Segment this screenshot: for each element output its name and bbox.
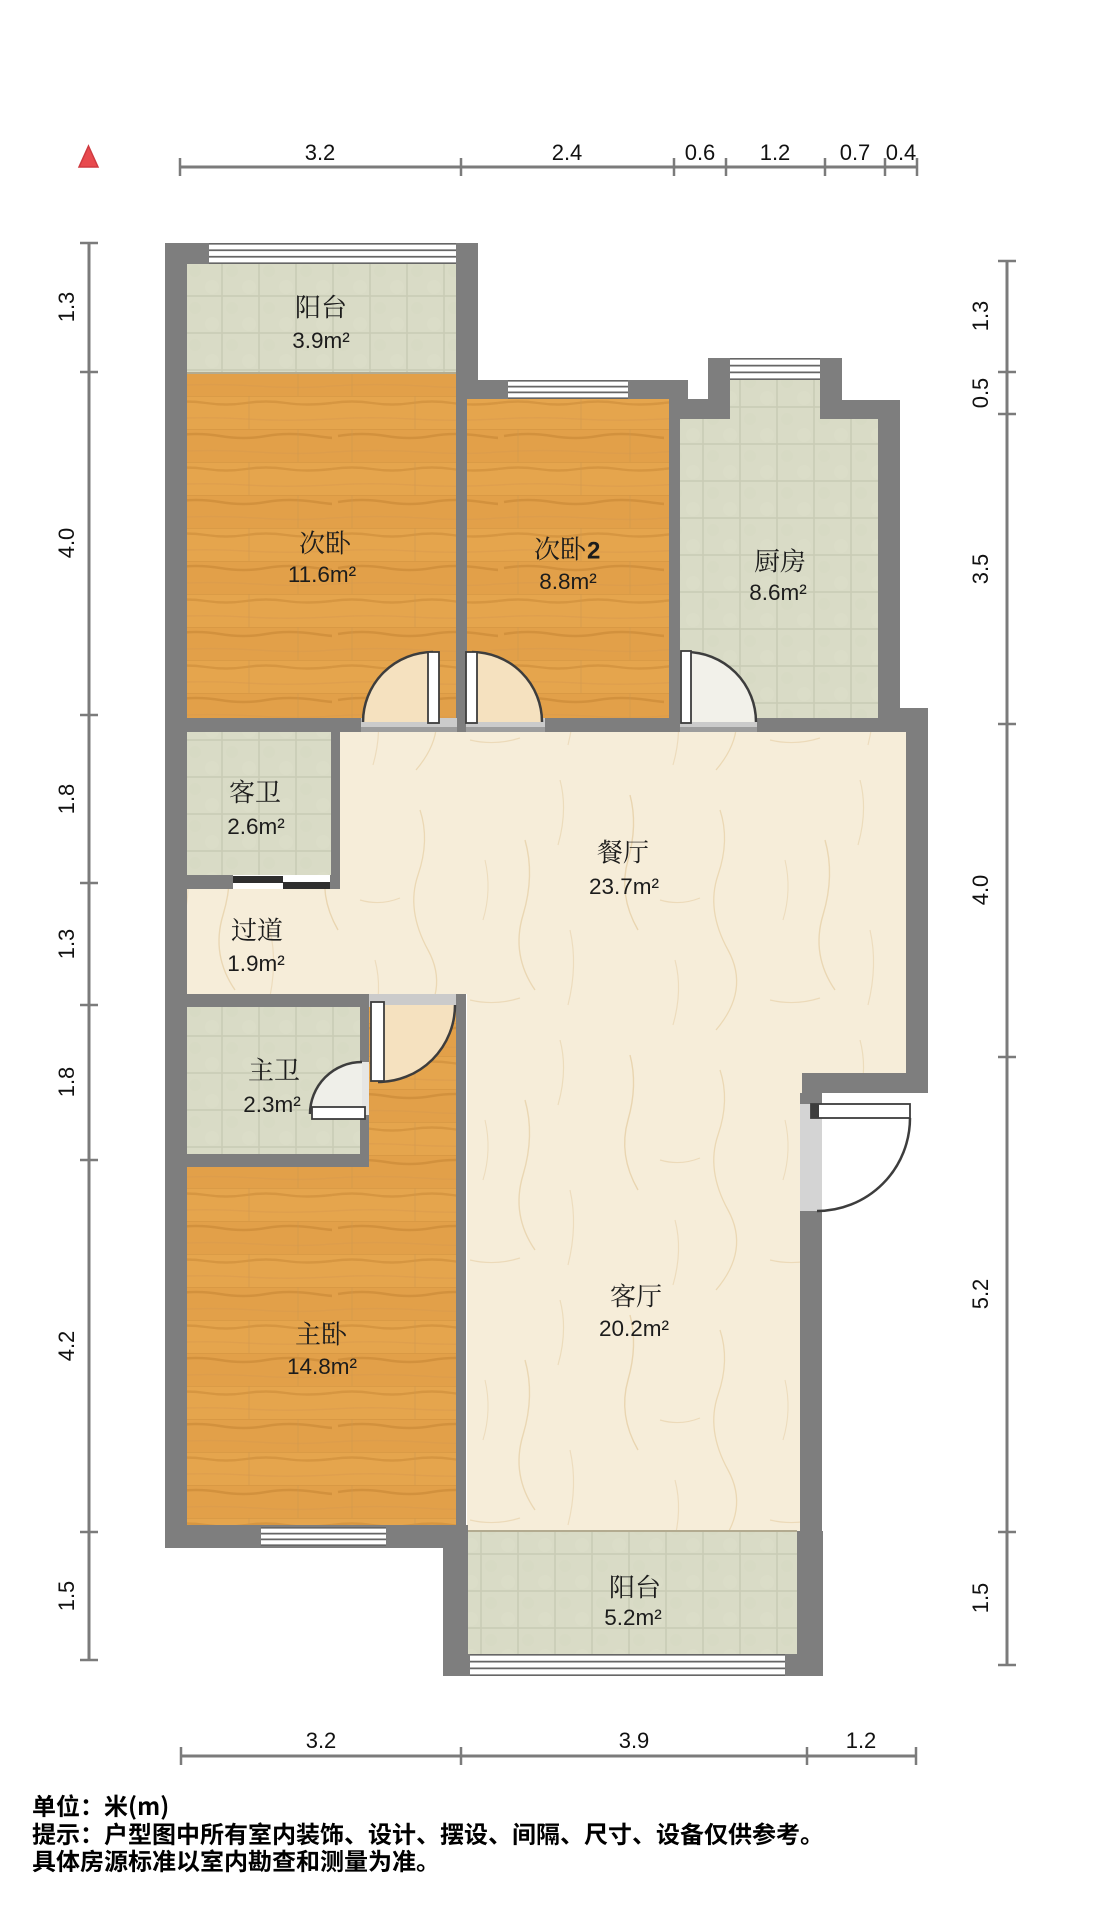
- svg-text:0.6: 0.6: [685, 140, 716, 165]
- svg-text:3.5: 3.5: [968, 554, 993, 585]
- svg-text:4.2: 4.2: [54, 1331, 79, 1362]
- svg-text:3.2: 3.2: [306, 1728, 337, 1753]
- svg-text:8.8m²: 8.8m²: [539, 569, 597, 594]
- svg-text:8.6m²: 8.6m²: [749, 580, 807, 605]
- svg-text:2.4: 2.4: [552, 140, 583, 165]
- svg-text:2: 2: [587, 537, 600, 564]
- svg-text:5.2: 5.2: [968, 1279, 993, 1310]
- svg-text:1.3: 1.3: [54, 929, 79, 960]
- svg-text:3.9: 3.9: [619, 1728, 650, 1753]
- svg-text:3.2: 3.2: [305, 140, 336, 165]
- svg-text:1.8: 1.8: [54, 784, 79, 815]
- svg-text:14.8m²: 14.8m²: [287, 1354, 358, 1379]
- svg-text:20.2m²: 20.2m²: [599, 1316, 670, 1341]
- svg-text:1.2: 1.2: [760, 140, 791, 165]
- svg-text:0.7: 0.7: [840, 140, 871, 165]
- svg-text:3.9m²: 3.9m²: [292, 328, 350, 353]
- svg-text:1.5: 1.5: [54, 1581, 79, 1612]
- svg-text:5.2m²: 5.2m²: [604, 1605, 662, 1630]
- svg-text:1.2: 1.2: [846, 1728, 877, 1753]
- svg-text:1.3: 1.3: [968, 301, 993, 332]
- svg-text:1.9m²: 1.9m²: [227, 951, 285, 976]
- svg-text:1.5: 1.5: [968, 1583, 993, 1614]
- svg-text:4.0: 4.0: [968, 875, 993, 906]
- svg-text:1.8: 1.8: [54, 1067, 79, 1098]
- svg-text:0.4: 0.4: [886, 140, 917, 165]
- svg-text:1.3: 1.3: [54, 292, 79, 323]
- svg-text:11.6m²: 11.6m²: [288, 562, 357, 587]
- svg-text:23.7m²: 23.7m²: [589, 874, 660, 899]
- svg-text:2.3m²: 2.3m²: [243, 1092, 301, 1117]
- svg-text:4.0: 4.0: [54, 528, 79, 559]
- svg-text:0.5: 0.5: [968, 378, 993, 409]
- svg-text:2.6m²: 2.6m²: [227, 814, 285, 839]
